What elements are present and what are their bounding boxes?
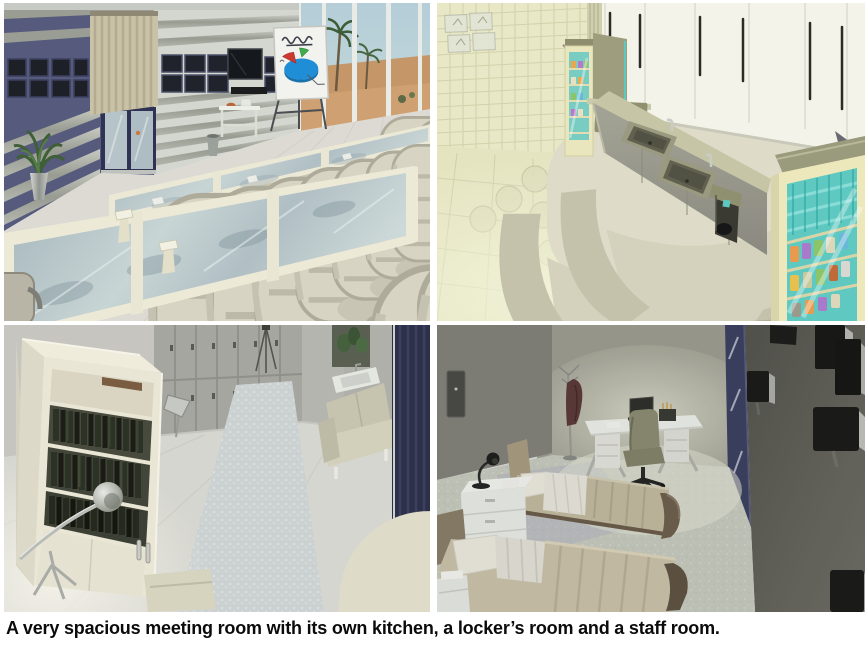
wall-mirror-plant bbox=[332, 325, 370, 367]
bookcase bbox=[16, 339, 162, 597]
soundbar-shelf bbox=[231, 87, 267, 94]
panel-meeting-room bbox=[4, 3, 430, 321]
panel-kitchen bbox=[437, 3, 865, 321]
ceiling-band bbox=[4, 3, 299, 10]
screenshot-collage: A very spacious meeting room with its ow… bbox=[0, 0, 867, 650]
wall-tv bbox=[228, 49, 262, 79]
drink-cooler-tall bbox=[565, 39, 593, 156]
panel-staff-room bbox=[437, 325, 865, 612]
drink-cooler-large bbox=[771, 136, 865, 321]
glass-doors bbox=[101, 107, 156, 174]
wall-banner bbox=[90, 9, 158, 117]
vignette bbox=[437, 325, 865, 612]
panel-locker-room bbox=[4, 325, 430, 612]
trash-bin bbox=[207, 134, 219, 156]
ottoman bbox=[144, 569, 216, 612]
caption-text: A very spacious meeting room with its ow… bbox=[6, 617, 862, 639]
